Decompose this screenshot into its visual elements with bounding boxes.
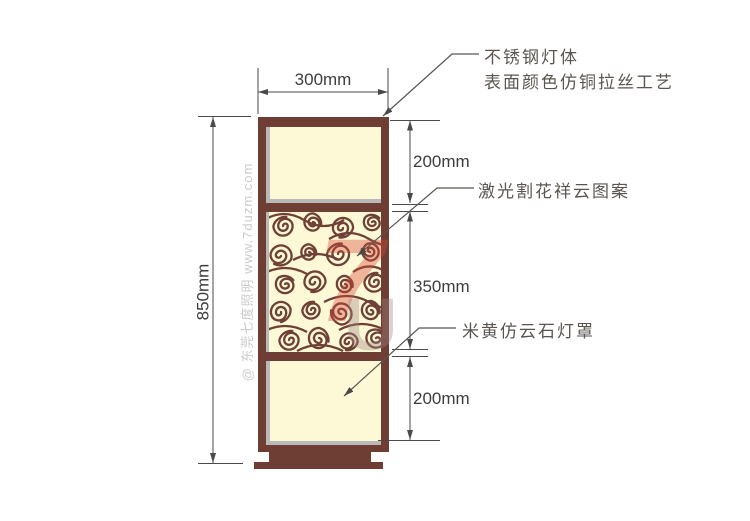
top-lampshade-panel: [266, 127, 381, 203]
dim-label-200mm-top: 200mm: [413, 152, 470, 172]
annotation-body: 不锈钢灯体 表面颜色仿铜拉丝工艺: [484, 45, 674, 95]
bottom-lampshade-panel: [266, 361, 381, 445]
annotation-pattern: 激光割花祥云图案: [478, 177, 630, 202]
annotation-body-line2: 表面颜色仿铜拉丝工艺: [484, 70, 674, 95]
dim-label-300mm: 300mm: [283, 70, 363, 90]
lamp-dimension-drawing: @ 东莞七度照明 www.7duzm.com 7 U: [0, 0, 750, 521]
watermark-logo-u: U: [344, 288, 397, 362]
watermark-side-text: @ 东莞七度照明 www.7duzm.com: [237, 147, 253, 397]
leader-body: [383, 54, 479, 116]
annotation-shade: 米黄仿云石灯罩: [462, 317, 595, 342]
dim-label-350mm: 350mm: [413, 277, 470, 297]
dim-label-850mm: 850mm: [194, 250, 212, 335]
lamp-base-pedestal: [269, 452, 371, 462]
dim-label-200mm-bottom: 200mm: [413, 389, 470, 409]
annotation-body-line1: 不锈钢灯体: [484, 45, 674, 70]
lamp-base-plinth: [254, 462, 383, 469]
